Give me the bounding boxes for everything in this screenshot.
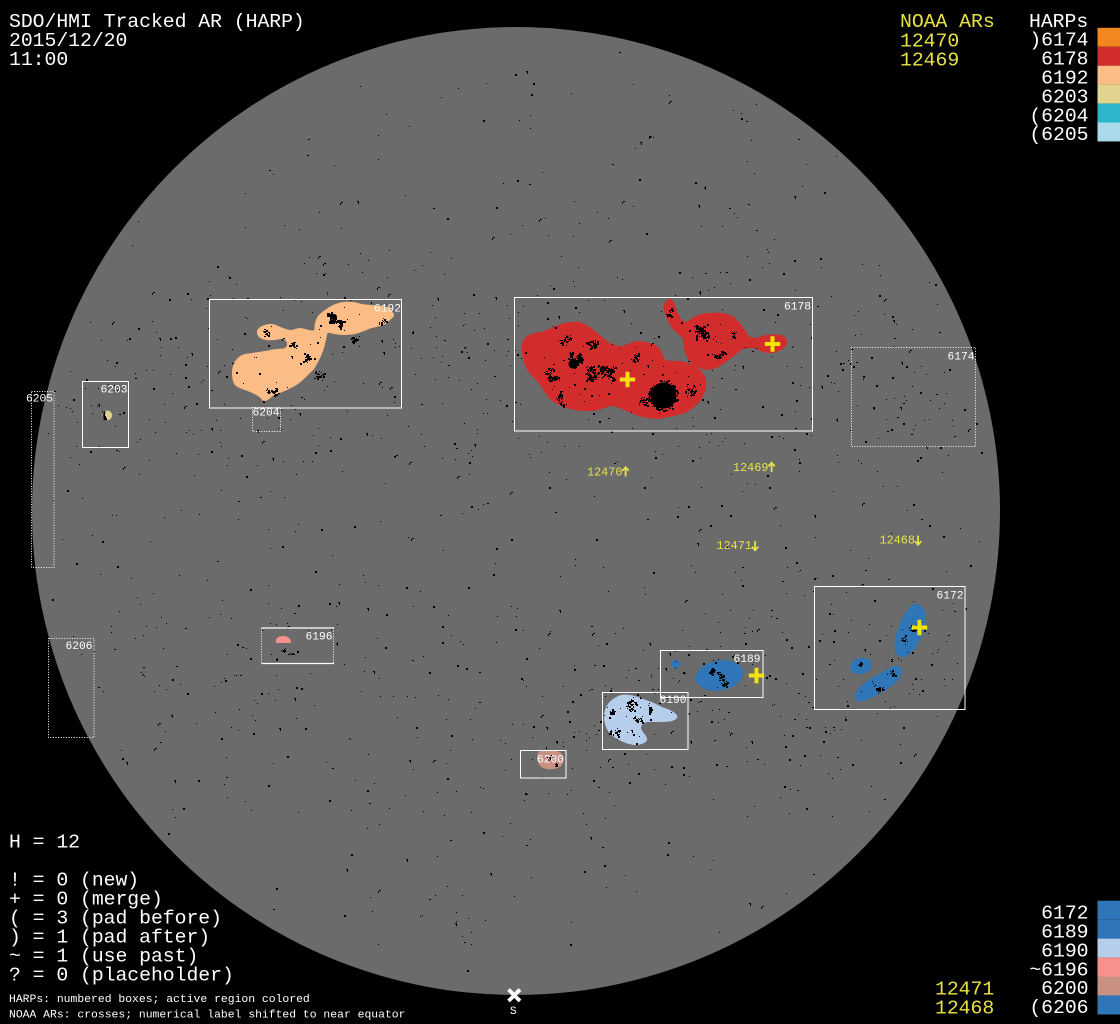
svg-text:(6205: (6205 (1029, 124, 1088, 146)
svg-text:12468: 12468 (935, 997, 994, 1019)
svg-text:6172: 6172 (936, 591, 963, 603)
svg-text:? = 0 (placeholder): ? = 0 (placeholder) (9, 965, 234, 987)
svg-text:6200: 6200 (537, 754, 564, 766)
svg-text:12470: 12470 (587, 466, 622, 480)
svg-text:H = 12: H = 12 (9, 832, 80, 854)
svg-text:12469: 12469 (733, 461, 768, 475)
svg-text:S: S (510, 1006, 517, 1018)
svg-text:NOAA ARs: crosses; numerical l: NOAA ARs: crosses; numerical label shift… (9, 1009, 405, 1021)
svg-text:12468: 12468 (880, 534, 915, 548)
svg-text:6204: 6204 (253, 407, 280, 419)
svg-text:12471: 12471 (717, 539, 752, 553)
svg-text:HARPs: numbered boxes; active: HARPs: numbered boxes; active region col… (9, 994, 310, 1006)
svg-text:12469: 12469 (900, 50, 959, 72)
svg-text:6192: 6192 (374, 304, 401, 316)
svg-text:11:00: 11:00 (9, 49, 68, 71)
svg-text:6203: 6203 (100, 384, 127, 396)
svg-text:6189: 6189 (733, 654, 760, 666)
svg-text:(6206: (6206 (1029, 997, 1088, 1019)
svg-text:6205: 6205 (26, 394, 53, 406)
svg-text:6206: 6206 (65, 641, 92, 653)
svg-text:6196: 6196 (305, 631, 332, 643)
svg-text:6190: 6190 (659, 695, 686, 707)
svg-text:6178: 6178 (784, 302, 811, 314)
svg-text:6174: 6174 (947, 352, 974, 364)
